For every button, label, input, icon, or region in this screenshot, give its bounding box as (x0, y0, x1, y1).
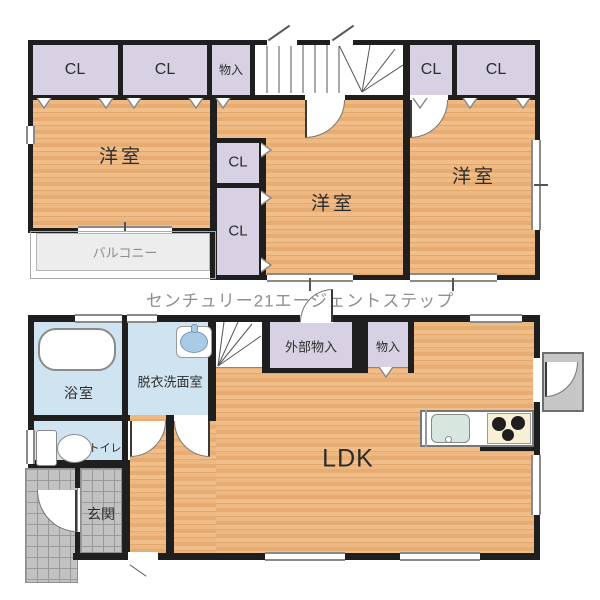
window-gap-stairs-1 (267, 39, 297, 46)
stove-burner (511, 416, 525, 430)
closet-door-mark (378, 367, 394, 378)
wall-segment (262, 315, 270, 373)
wall-segment (166, 415, 174, 553)
wall-segment (352, 315, 368, 373)
wall-segment (210, 138, 266, 143)
label-balcony: バルコニー (93, 247, 158, 260)
window-washroom-top (127, 314, 157, 323)
label-cl-3: CL (421, 62, 441, 78)
wall-segment (75, 532, 80, 553)
window-ldk-top (470, 314, 522, 323)
label-room-right: 洋室 (452, 168, 496, 187)
label-entrance: 玄関 (87, 507, 115, 521)
door-gap-entrance-side (128, 552, 158, 560)
label-room-center: 洋室 (311, 195, 355, 214)
window-ldk-bottom-right (400, 552, 480, 561)
toilet-tank (36, 430, 57, 466)
wall-segment (408, 315, 414, 373)
label-cl-column-top: CL (228, 155, 247, 170)
wall-segment (118, 45, 123, 95)
staircase-2f (255, 45, 403, 95)
wall-segment (122, 421, 128, 460)
wall-segment (217, 183, 259, 188)
window-2f-left-wall (26, 126, 35, 144)
wall-segment (207, 45, 212, 95)
label-ldk: LDK (322, 447, 374, 472)
closet-door-mark (261, 142, 272, 158)
wall-segment (122, 315, 128, 415)
closet-door-mark (188, 98, 204, 109)
window-bathroom-top (75, 314, 122, 323)
wall-segment (75, 468, 80, 488)
bathtub (38, 328, 116, 371)
window-ldk-bottom-left (265, 552, 345, 561)
wall-segment (122, 468, 130, 553)
label-storage-1f: 物入 (376, 341, 400, 353)
window-tick (309, 278, 311, 291)
window-ldk-right (531, 455, 541, 515)
closet-door-mark (462, 98, 478, 109)
closet-door-mark (36, 98, 52, 109)
brand-text: センチュリー21エージェントステップ (146, 293, 455, 310)
floor-plan: CL CL 物入 CL CL CL CL 洋室 洋室 洋室 バルコニー センチュ… (0, 0, 600, 600)
window-tick (452, 278, 454, 291)
label-washroom: 脱衣洗面室 (137, 376, 202, 389)
wall-segment (33, 95, 305, 100)
wall-segment (403, 45, 410, 280)
label-toilet: トイレ (89, 444, 122, 455)
staircase-1f (216, 322, 262, 368)
window-tick (534, 184, 548, 186)
door-gap-kitchen-exit (533, 358, 541, 402)
washbasin-tap (191, 324, 198, 333)
label-room-left: 洋室 (99, 148, 143, 167)
door-swing-mark (130, 564, 147, 576)
closet-door-mark (215, 98, 231, 109)
counter-edge (425, 410, 427, 447)
wall-segment (534, 315, 540, 560)
closet-door-mark (98, 98, 114, 109)
closet-door-mark (515, 98, 531, 109)
wall-segment (33, 415, 130, 421)
stove-burner (502, 429, 514, 441)
toilet-bowl (57, 434, 92, 463)
label-cl-4: CL (486, 62, 506, 78)
label-external-storage: 外部物入 (285, 341, 337, 354)
wall-segment (452, 45, 457, 95)
wall-segment (345, 95, 403, 100)
closet-door-mark (261, 257, 272, 273)
label-cl-2: CL (155, 62, 175, 78)
label-cl-1: CL (65, 62, 85, 78)
closet-door-mark (126, 98, 142, 109)
kitchen-faucet (445, 436, 452, 443)
label-bathroom: 浴室 (64, 386, 94, 400)
closet-door-mark (412, 98, 428, 109)
closet-door-mark (261, 190, 272, 206)
label-storage-2f: 物入 (219, 64, 243, 76)
window-toilet-left (26, 430, 35, 464)
washbasin-bowl (180, 331, 208, 353)
label-cl-column-bottom: CL (228, 224, 247, 239)
